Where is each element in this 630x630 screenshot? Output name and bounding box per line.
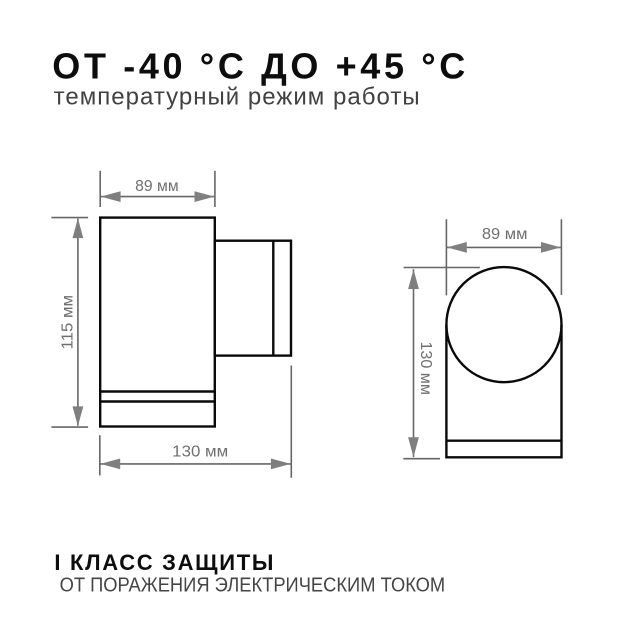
svg-text:ОТ -40 °С ДО +45 °С: ОТ -40 °С ДО +45 °С — [52, 46, 465, 87]
svg-text:температурный режим работы: температурный режим работы — [54, 83, 420, 110]
svg-text:I КЛАСС ЗАЩИТЫ: I КЛАСС ЗАЩИТЫ — [54, 550, 273, 575]
svg-text:89 мм: 89 мм — [135, 178, 179, 195]
svg-text:ОТ ПОРАЖЕНИЯ ЭЛЕКТРИЧЕСКИМ ТОК: ОТ ПОРАЖЕНИЯ ЭЛЕКТРИЧЕСКИМ ТОКОМ — [60, 574, 446, 596]
svg-text:89 мм: 89 мм — [482, 226, 528, 243]
svg-text:130 мм: 130 мм — [417, 341, 434, 395]
svg-text:115 мм: 115 мм — [59, 295, 76, 350]
svg-text:130 мм: 130 мм — [172, 443, 228, 460]
